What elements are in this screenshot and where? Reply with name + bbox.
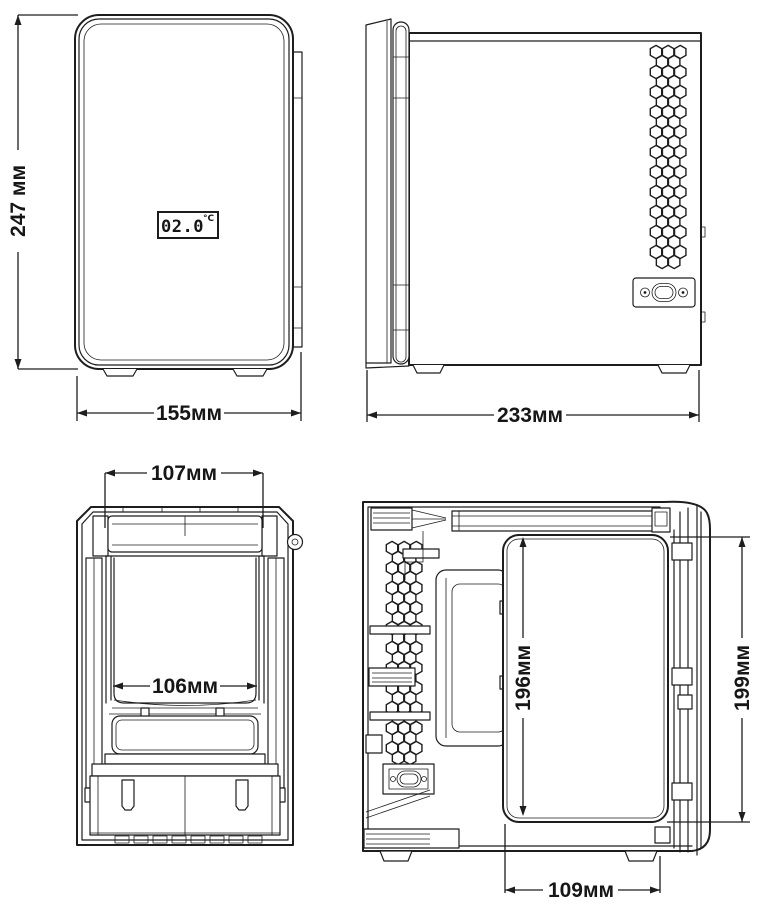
arrow-right-icon [689, 412, 699, 419]
heatsink-shelf [92, 764, 278, 776]
dim-height-label: 247 мм [7, 165, 30, 237]
display-temperature-unit: °C [203, 214, 215, 224]
dim-width-label: 155мм [156, 402, 222, 425]
temperature-display: 02.0 °C [158, 212, 218, 238]
dim-door-height-label: 199мм [731, 645, 754, 711]
vent-shelf-upper [370, 626, 430, 634]
front-door-outline [75, 15, 293, 369]
arrow-up-icon [739, 537, 746, 547]
front-view: 02.0 °C 247 мм 155мм [7, 15, 302, 425]
arrow-left-icon [77, 410, 87, 417]
side-section-view: 196мм 199мм 109мм [363, 502, 754, 902]
screw-dot-icon [644, 291, 647, 294]
arrow-left-icon [367, 412, 377, 419]
vent-bracket-bar [369, 668, 415, 686]
lid-bracket [371, 508, 412, 530]
section-lid-slab [452, 511, 656, 531]
arrow-down-icon [739, 812, 746, 822]
dc-port-section [383, 764, 434, 794]
dim-depth-side: 233мм [367, 370, 699, 427]
arrow-right-icon [650, 887, 660, 894]
heatsink-plate [105, 754, 265, 764]
fan-shroud [436, 570, 508, 746]
dim-height-front: 247 мм [7, 15, 78, 369]
screw-dot-icon [682, 291, 685, 294]
dim-cavity-depth-label: 109мм [548, 879, 614, 902]
side-view: 233мм [366, 19, 705, 427]
cold-block [112, 716, 258, 754]
arrow-left-icon [505, 887, 515, 894]
vent-shelf-lower [370, 712, 430, 720]
front-feet [103, 369, 267, 376]
dc-port-plate [633, 278, 695, 307]
arrow-left-icon [105, 470, 115, 477]
dim-depth-label: 233мм [497, 404, 563, 427]
arrow-up-icon [15, 15, 22, 25]
base-bracket [364, 829, 459, 848]
front-section-view: 107мм 106мм [77, 462, 303, 845]
section-feet [380, 851, 657, 861]
arrow-right-icon [253, 470, 263, 477]
display-temperature-value: 02.0 [161, 217, 204, 237]
hinge-pin-icon [288, 535, 303, 550]
side-feet [413, 365, 690, 373]
top-rod [403, 549, 439, 558]
arrow-down-icon [15, 359, 22, 369]
dim-cavity-width-label: 106мм [152, 675, 218, 698]
dim-cavity-height-label: 196мм [512, 645, 535, 711]
fridge-dimension-drawing: 02.0 °C 247 мм 155мм [0, 0, 761, 914]
arrow-right-icon [291, 410, 301, 417]
door-bottom-latch [655, 827, 670, 843]
dc-port-side [633, 278, 695, 307]
hinge-pillar [393, 22, 409, 364]
lower-hinge-block [366, 735, 382, 753]
technical-drawing-page: 02.0 °C 247 мм 155мм [0, 0, 761, 914]
dim-opening-label: 107мм [151, 462, 217, 485]
